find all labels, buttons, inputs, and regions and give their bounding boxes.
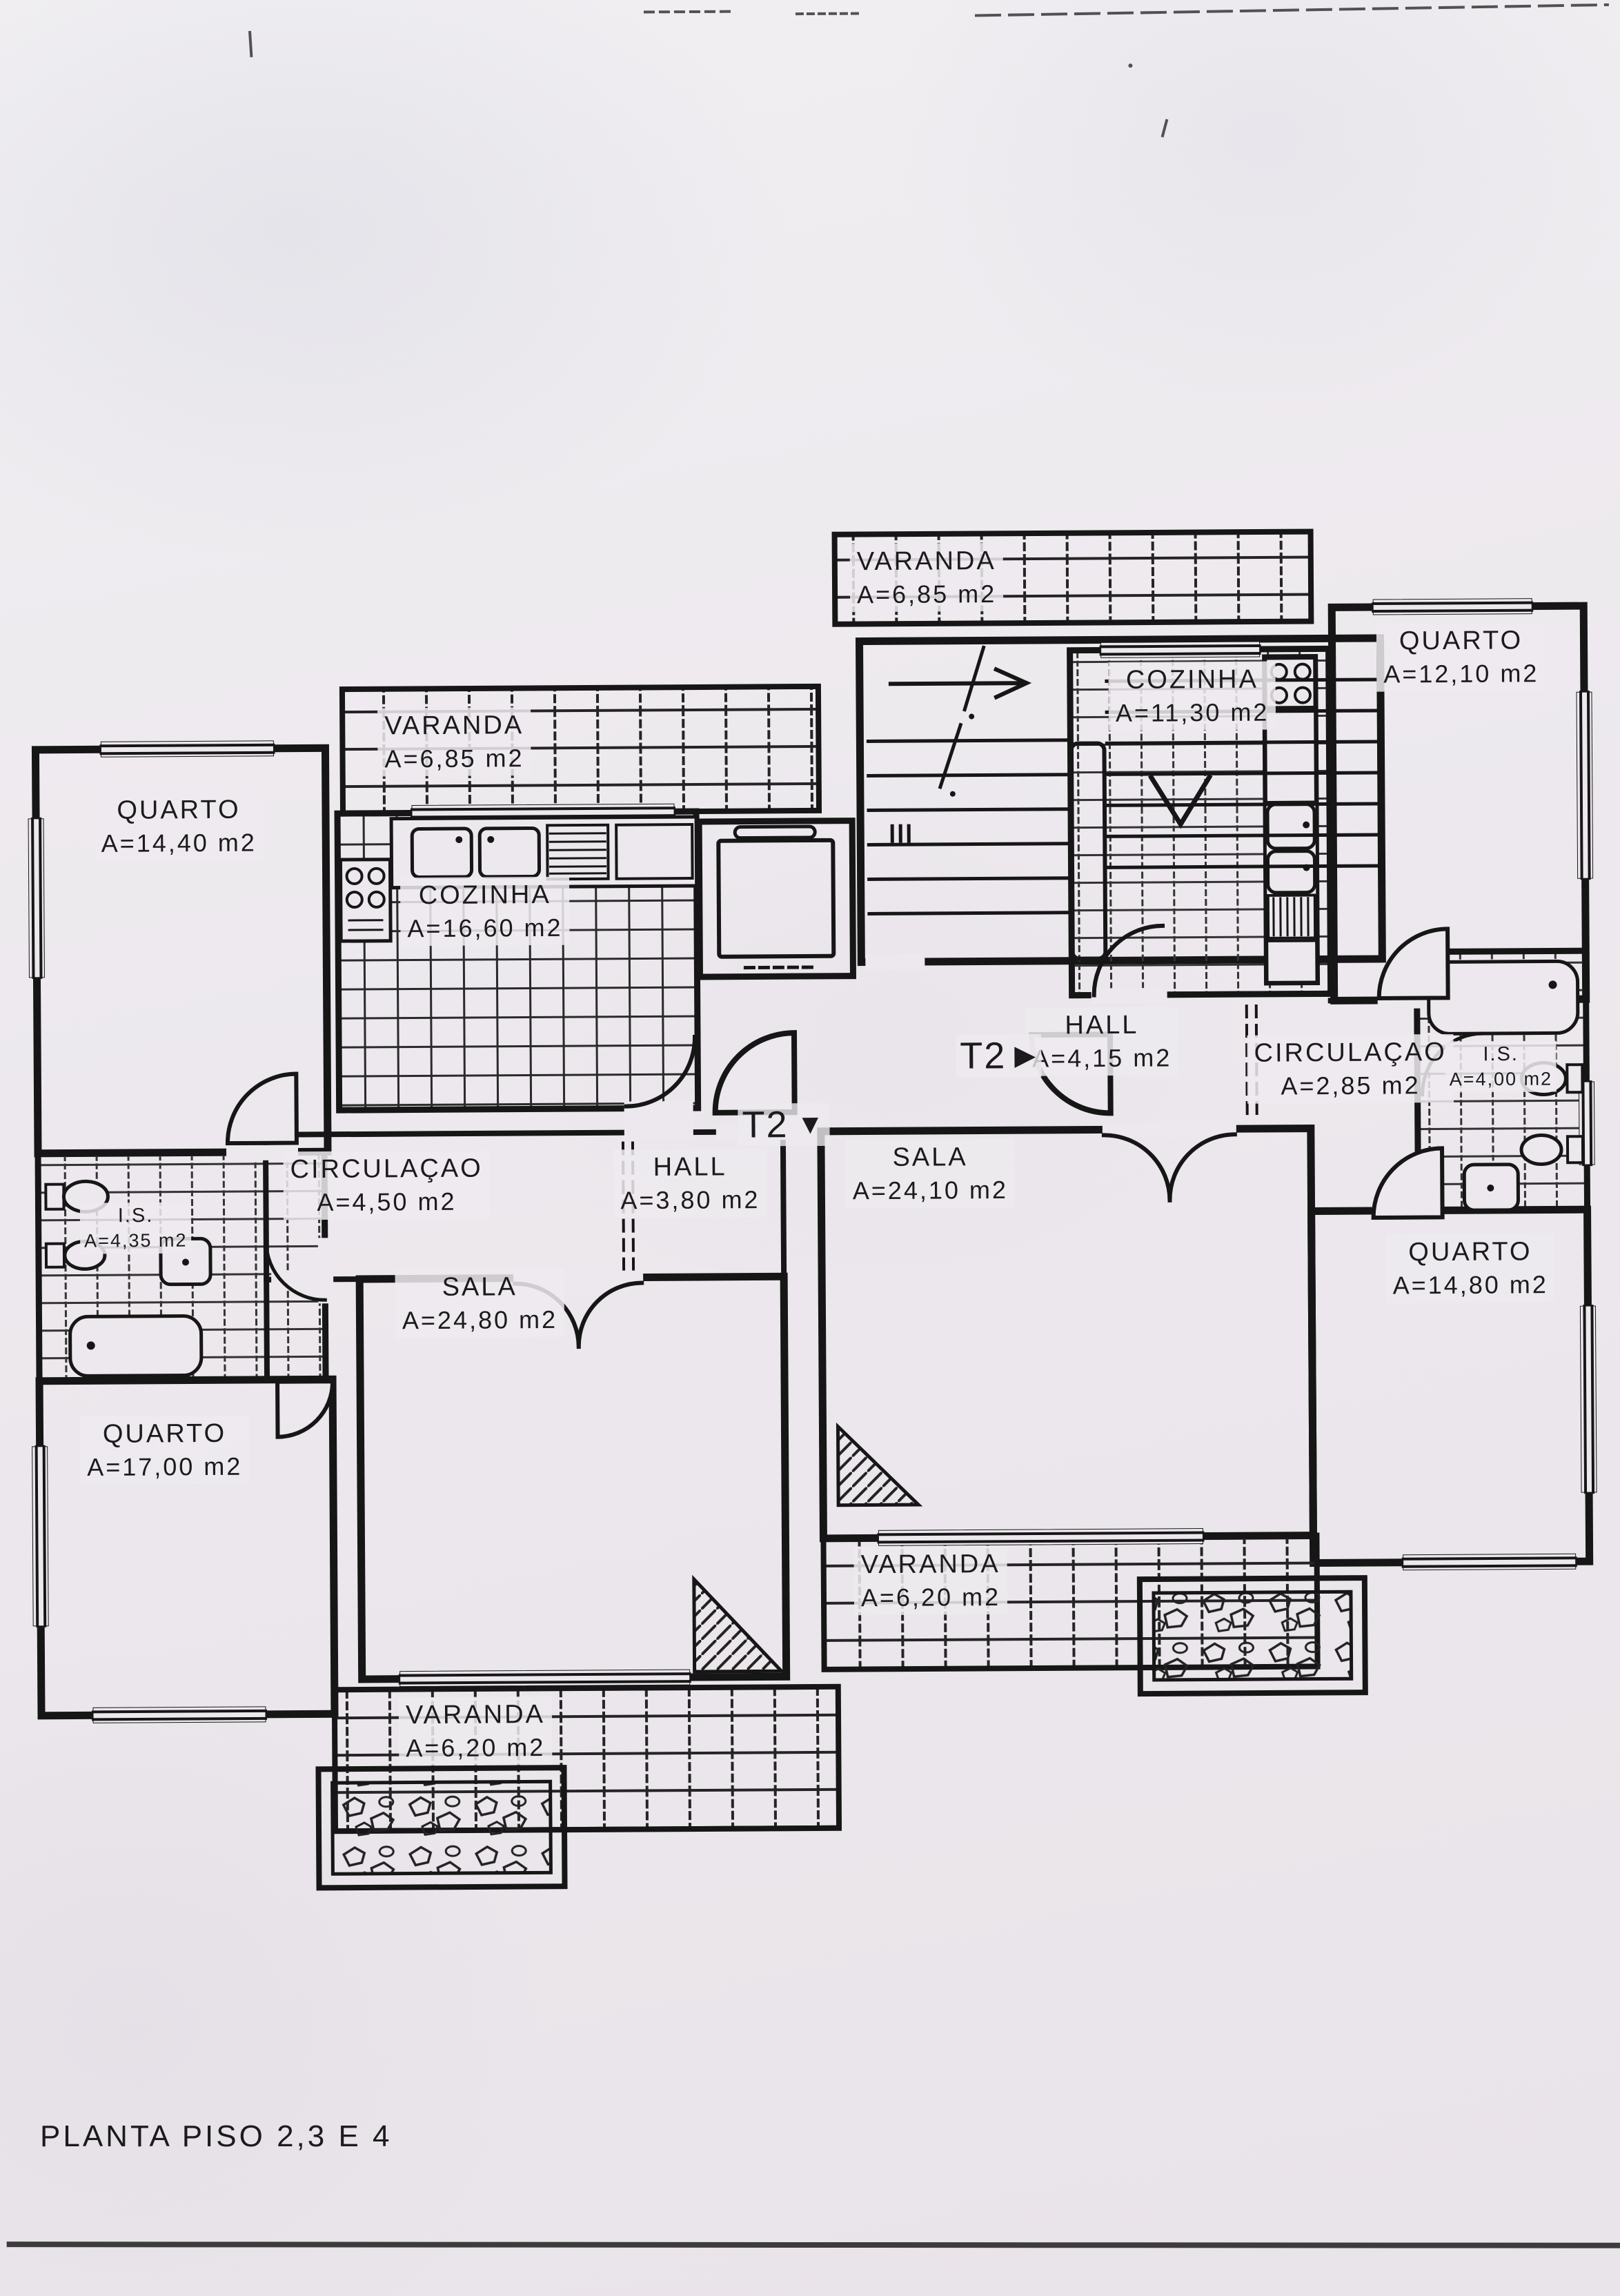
door-arc: [277, 1381, 333, 1436]
room-label-quarto-17-00: QUARTOA=17,00 m2: [80, 1416, 250, 1485]
room-label-cozinha-16-60: COZINHAA=16,60 m2: [400, 877, 570, 946]
stairs-up-arrow: [891, 669, 1027, 697]
window: [1373, 599, 1532, 615]
room-label-hall-4-15: HALLA=4,15 m2: [1025, 1007, 1179, 1076]
window: [1577, 692, 1593, 878]
window: [1101, 642, 1260, 657]
entry-door-left: [715, 1033, 795, 1113]
window: [93, 1707, 266, 1723]
floor-plan: VARANDAA=6,85 m2 QUARTOA=14,40 m2 COZINH…: [0, 0, 1620, 2296]
room-label-hall-3-80: HALLA=3,80 m2: [613, 1149, 767, 1218]
window: [400, 1670, 690, 1687]
walls: [34, 530, 1591, 1833]
room-label-cozinha-11-30: COZINHAA=11,30 m2: [1108, 662, 1276, 731]
floor-plan-drawing: [0, 0, 1620, 2296]
room-label-varanda-6-20-left: VARANDAA=6,20 m2: [399, 1696, 553, 1765]
washbasin-icon: [1464, 1165, 1518, 1210]
window: [32, 1447, 49, 1626]
room-label-varanda-left: VARANDAA=6,85 m2: [377, 707, 531, 776]
planter: [1140, 1578, 1365, 1694]
room-label-circulacao-4-50: CIRCULAÇAOA=4,50 m2: [283, 1150, 490, 1220]
door-arc: [227, 1074, 297, 1144]
room-label-varanda-top: VARANDAA=6,85 m2: [850, 543, 1004, 612]
door-arc: [1373, 1148, 1443, 1218]
elevator-shaft: [699, 821, 853, 977]
stove-icon: [340, 860, 391, 941]
window: [1403, 1554, 1576, 1570]
bidet-icon: [1521, 1135, 1583, 1165]
room-label-circulacao-2-85: CIRCULAÇAOA=2,85 m2: [1247, 1034, 1454, 1104]
window: [101, 741, 273, 758]
room-label-is-4-00: I.S.A=4,00 m2: [1445, 1041, 1557, 1093]
arrow-right-icon: ▶: [1014, 1042, 1037, 1069]
planter: [318, 1768, 564, 1888]
room-label-is-4-35: I.S.A=4,35 m2: [80, 1203, 192, 1254]
bathtub-icon: [70, 1316, 201, 1376]
unit-marker-t2-left: T2 ▼: [738, 1103, 829, 1147]
bathtub-icon: [1428, 961, 1578, 1033]
window: [28, 819, 44, 978]
window: [1580, 1306, 1597, 1492]
door-arc: [1379, 929, 1448, 998]
room-label-varanda-6-20-right: VARANDAA=6,20 m2: [853, 1546, 1007, 1615]
curtain-door: [1104, 1134, 1236, 1200]
unit-marker-t2-right: T2 ▶: [956, 1034, 1041, 1078]
plan-title: PLANTA PISO 2,3 E 4: [40, 2119, 393, 2154]
room-label-sala-24-80: SALAA=24,80 m2: [395, 1269, 564, 1338]
room-label-sala-24-10: SALAA=24,10 m2: [845, 1139, 1015, 1208]
room-label-quarto-14-40: QUARTOA=14,40 m2: [94, 791, 264, 860]
room-label-quarto-14-80: QUARTOA=14,80 m2: [1385, 1234, 1555, 1303]
arrow-down-icon: ▼: [796, 1111, 825, 1138]
scanned-floor-plan-page: VARANDAA=6,85 m2 QUARTOA=14,40 m2 COZINH…: [0, 0, 1620, 2296]
room-label-quarto-12-10: QUARTOA=12,10 m2: [1376, 622, 1546, 691]
window: [878, 1529, 1203, 1546]
right-apartment-walls: [818, 606, 1590, 1670]
